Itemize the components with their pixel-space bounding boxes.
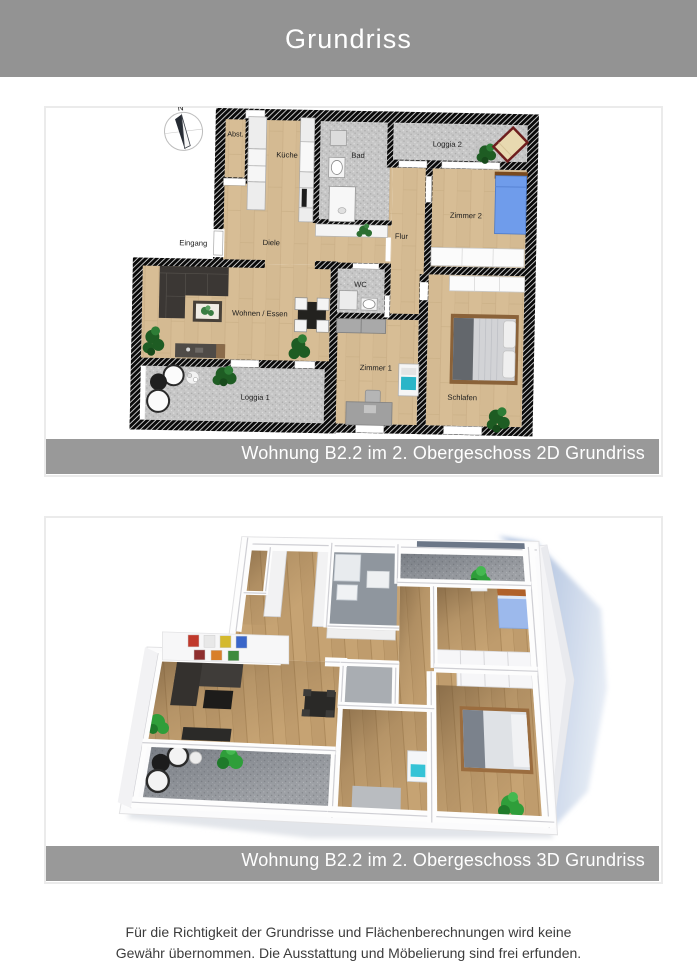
svg-text:Flur: Flur — [395, 232, 409, 241]
svg-text:N: N — [177, 107, 184, 113]
svg-text:Loggia 1: Loggia 1 — [241, 393, 270, 403]
svg-text:Abst.: Abst. — [227, 129, 244, 138]
svg-text:Wohnen / Essen: Wohnen / Essen — [232, 308, 288, 318]
svg-text:Diele: Diele — [263, 238, 280, 247]
svg-text:Zimmer 1: Zimmer 1 — [360, 363, 392, 373]
svg-text:Bad: Bad — [351, 151, 365, 160]
svg-text:Eingang: Eingang — [179, 238, 207, 248]
svg-text:Schlafen: Schlafen — [447, 393, 477, 403]
svg-text:WC: WC — [354, 280, 367, 289]
svg-text:Loggia 2: Loggia 2 — [433, 139, 462, 149]
svg-text:Zimmer 2: Zimmer 2 — [450, 211, 482, 221]
svg-text:Küche: Küche — [276, 150, 298, 159]
